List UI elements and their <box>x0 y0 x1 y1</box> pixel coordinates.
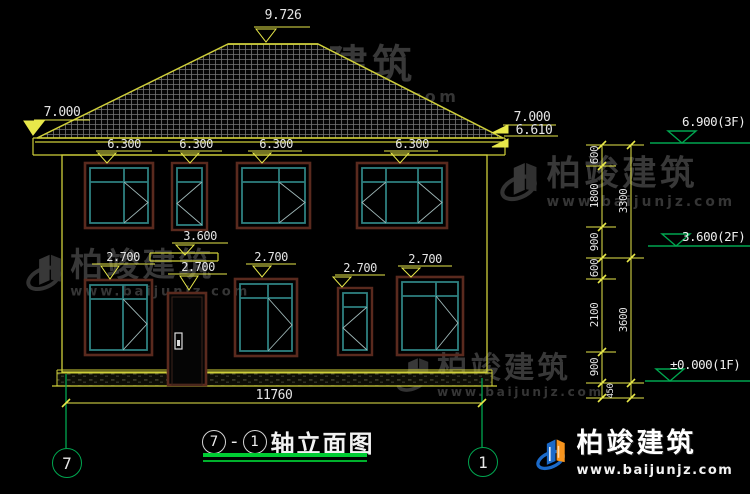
dim-2f-window-4: 6.300 <box>388 138 436 151</box>
window-1f-3 <box>338 288 372 355</box>
dim-2f-window-1: 6.300 <box>100 138 148 151</box>
title-dash: - <box>231 431 238 452</box>
roof <box>37 44 503 138</box>
dim-1f-window-3: 2.700 <box>336 262 384 275</box>
window-1f-4 <box>397 277 463 355</box>
dim-1f-door: 2.700 <box>174 261 222 274</box>
dim-ridge: 9.726 <box>257 9 309 22</box>
dim-1f-window-4: 2.700 <box>401 253 449 266</box>
dim-2f-window-3: 6.300 <box>252 138 300 151</box>
axis-bubble-1-label: 1 <box>478 453 488 472</box>
window-1f-2 <box>235 279 297 356</box>
cad-elevation-drawing: 柏竣建筑 www.baijunjz.com 柏竣建筑 www.baijunjz.… <box>0 0 750 494</box>
dim-1f-window-2: 2.700 <box>247 251 295 264</box>
dim-chain-600b: 600 <box>588 245 602 291</box>
dim-chain-3300: 3300 <box>617 178 631 224</box>
elevation-3f-label: 6.900(3F) <box>682 114 745 129</box>
logo-building-icon <box>536 423 569 485</box>
elevation-marks <box>645 131 750 381</box>
entry-door <box>168 293 206 385</box>
dim-eave-right-bottom: 6.610 <box>508 124 560 137</box>
elevation-2f-label: 3.600(2F) <box>682 229 745 244</box>
dim-chain-2100: 2100 <box>588 292 602 338</box>
dim-2f-window-2: 6.300 <box>172 138 220 151</box>
dim-chain-450: 450 <box>604 368 618 414</box>
logo-url: www.baijunjz.com <box>577 463 734 478</box>
window-1f-1 <box>85 280 152 355</box>
dim-1f-window-1: 2.700 <box>99 251 147 264</box>
dim-canopy: 3.600 <box>176 230 224 243</box>
dim-total-width: 11760 <box>246 389 302 402</box>
title-axis-end: 1 <box>243 430 267 454</box>
window-2f-1 <box>85 163 153 228</box>
axis-bubble-1: 1 <box>468 447 498 477</box>
window-2f-3 <box>237 163 310 228</box>
elevation-1f-label: ±0.000(1F) <box>670 357 740 372</box>
window-2f-4 <box>357 163 447 228</box>
dim-eave-left: 7.000 <box>36 106 88 119</box>
title-axis-start: 7 <box>202 430 226 454</box>
dim-chain-900b: 900 <box>588 344 602 390</box>
site-logo: 柏竣建筑 www.baijunjz.com <box>536 423 750 485</box>
dim-chain-600a: 600 <box>588 132 602 178</box>
axis-bubble-7: 7 <box>52 448 82 478</box>
window-2f-2 <box>172 163 207 230</box>
logo-name: 柏竣建筑 <box>577 428 697 459</box>
title-underline-thin <box>203 460 367 462</box>
dim-chain-3600: 3600 <box>617 297 631 343</box>
axis-bubble-7-label: 7 <box>62 454 72 473</box>
title-underline-thick <box>203 453 367 457</box>
elevation-linework <box>0 0 750 494</box>
dim-chain-1800: 1800 <box>588 173 602 219</box>
